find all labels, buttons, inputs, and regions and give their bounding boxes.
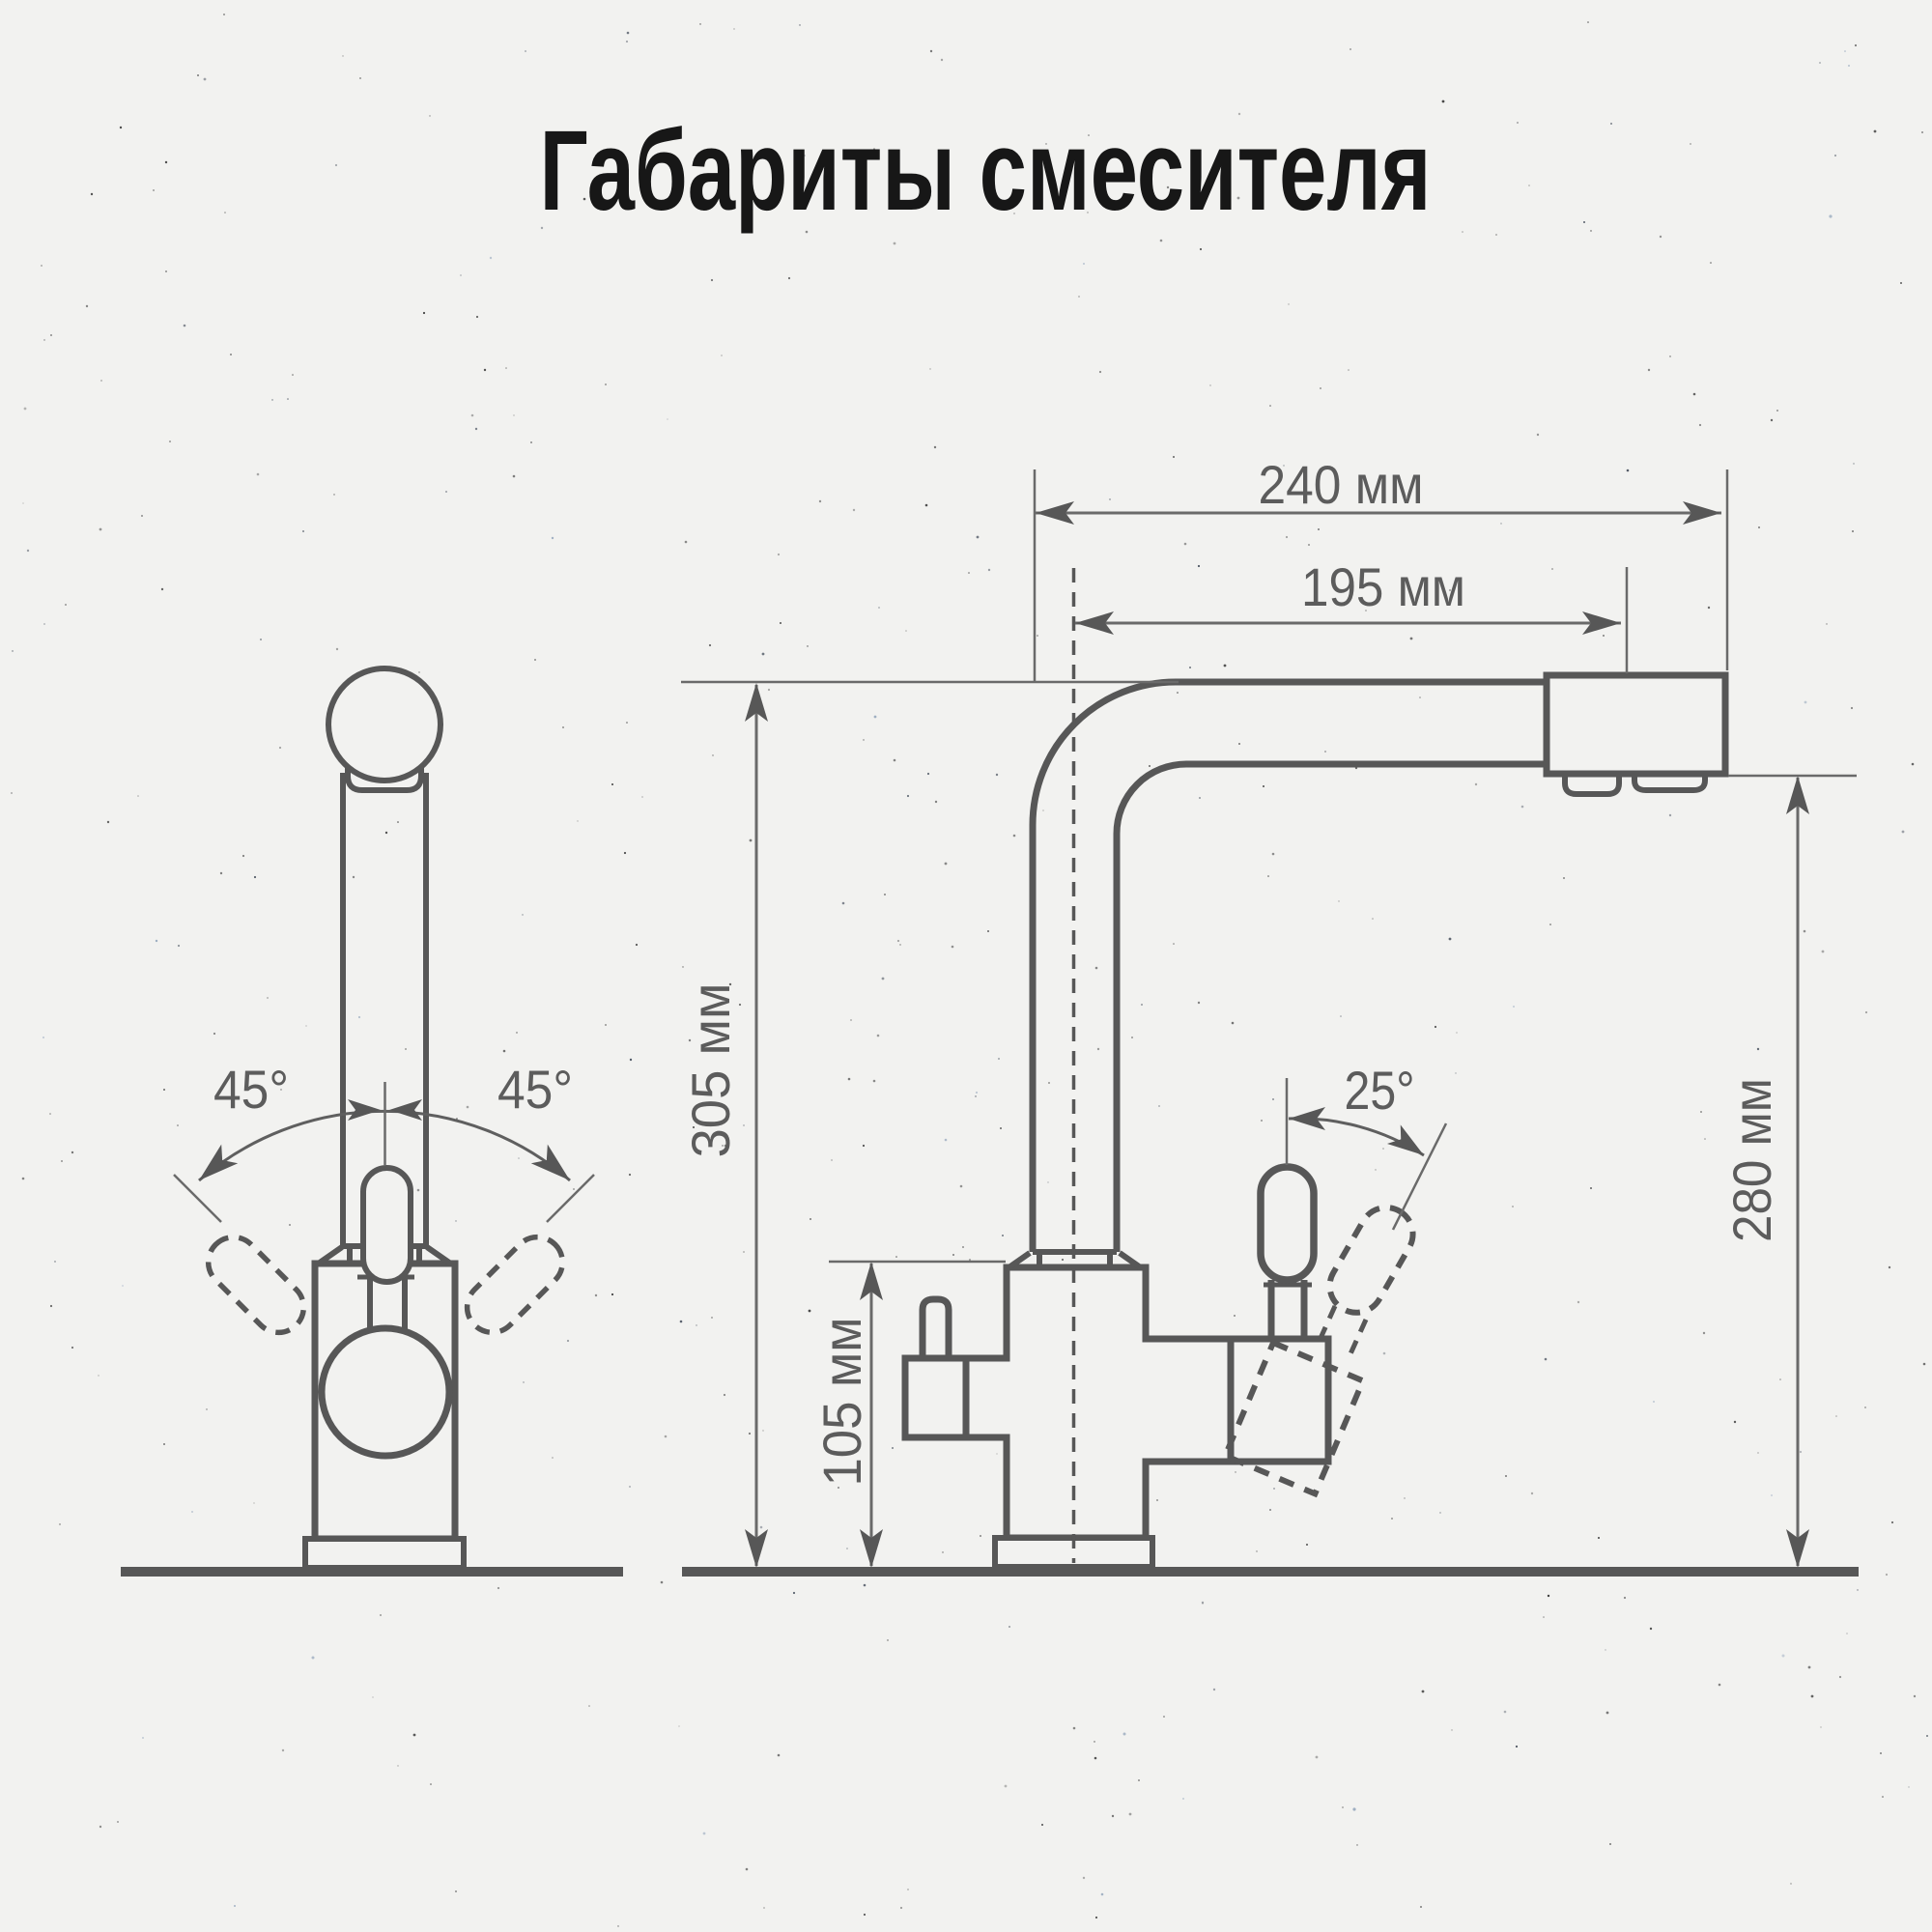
svg-text:240 мм: 240 мм [1259,454,1424,515]
svg-text:105 мм: 105 мм [811,1318,872,1487]
svg-text:305 мм: 305 мм [680,983,741,1158]
svg-text:280 мм: 280 мм [1721,1078,1782,1242]
svg-text:45°: 45° [497,1059,573,1120]
svg-text:45°: 45° [213,1059,289,1120]
svg-text:195 мм: 195 мм [1301,556,1465,617]
svg-text:Габариты смесителя: Габариты смесителя [540,107,1432,235]
svg-text:25°: 25° [1345,1060,1415,1121]
